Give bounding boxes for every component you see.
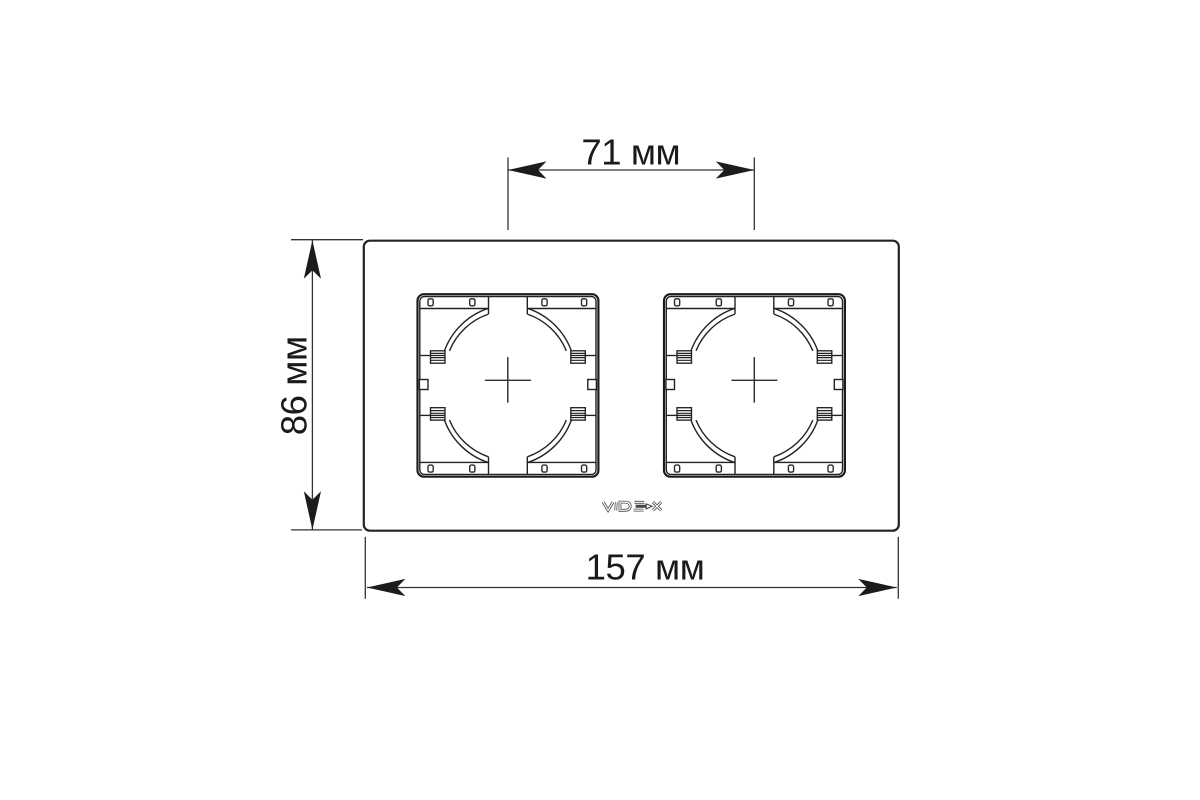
svg-text:157 мм: 157 мм — [586, 546, 705, 587]
svg-text:71 мм: 71 мм — [581, 132, 680, 173]
svg-text:86 мм: 86 мм — [274, 336, 315, 435]
